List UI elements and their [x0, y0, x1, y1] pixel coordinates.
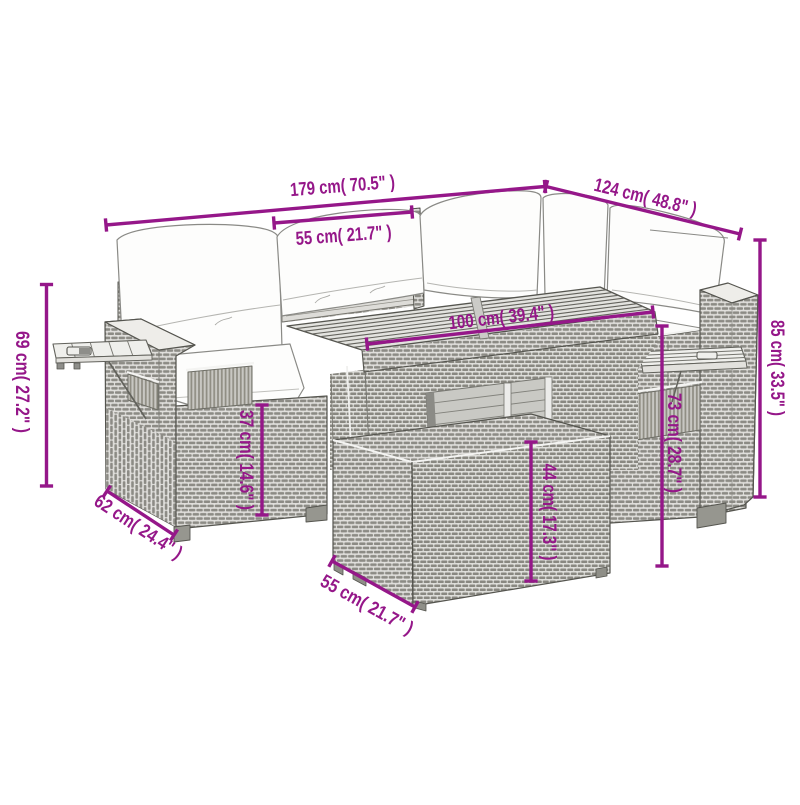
svg-text:37 cm( 14.6" ): 37 cm( 14.6" ) [235, 410, 256, 510]
svg-text:44 cm( 17.3" ): 44 cm( 17.3" ) [538, 464, 559, 561]
svg-text:73 cm( 28.7" ): 73 cm( 28.7" ) [663, 393, 684, 493]
svg-text:85 cm( 33.5" ): 85 cm( 33.5" ) [766, 320, 787, 416]
svg-text:69 cm( 27.2" ): 69 cm( 27.2" ) [11, 331, 32, 433]
